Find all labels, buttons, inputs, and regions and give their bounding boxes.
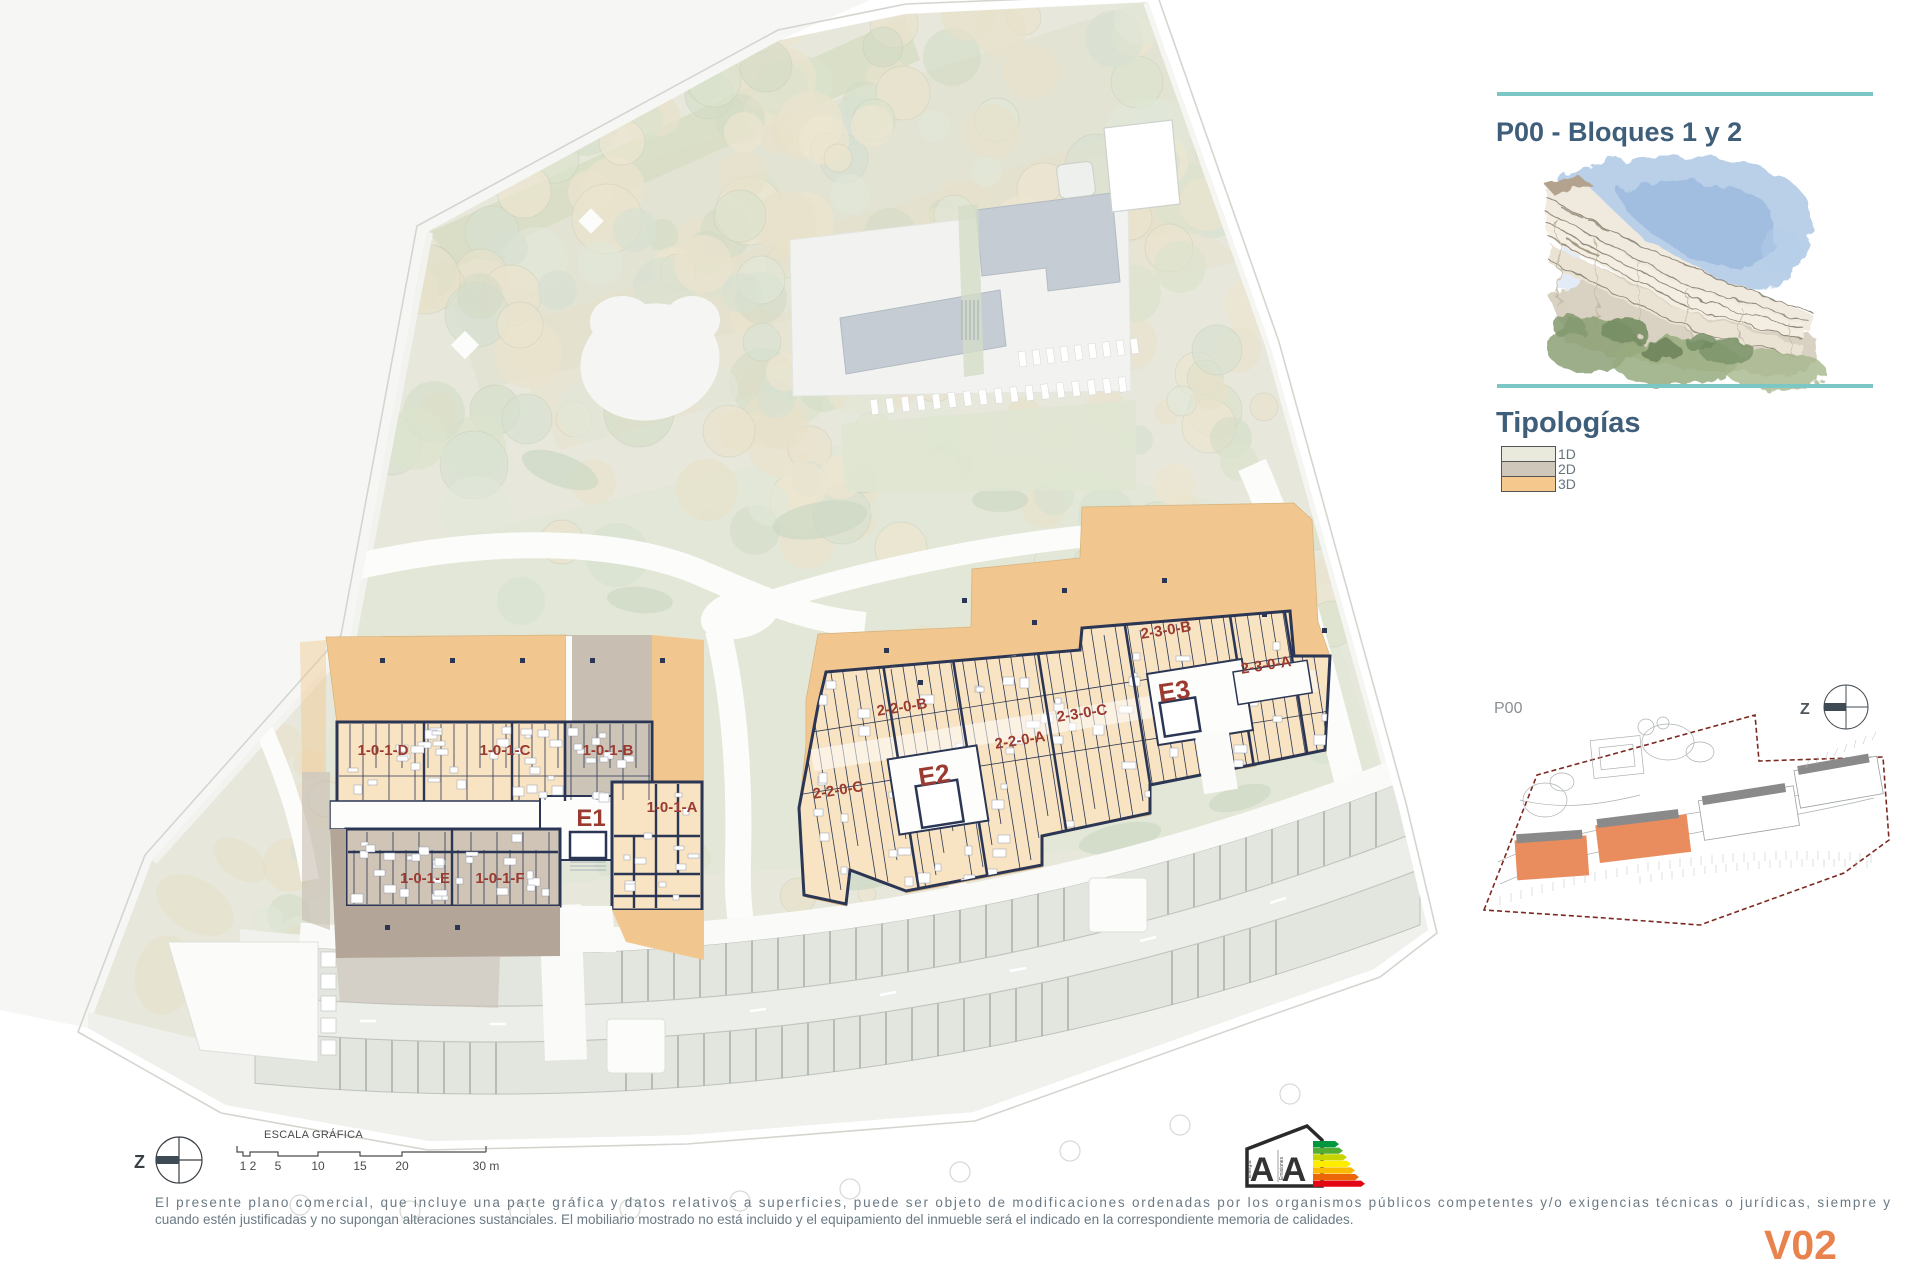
svg-text:1D: 1D <box>1558 446 1576 462</box>
svg-text:10: 10 <box>311 1159 325 1173</box>
svg-text:V02: V02 <box>1764 1222 1837 1268</box>
svg-text:ESCALA GRÁFICA: ESCALA GRÁFICA <box>264 1128 363 1141</box>
svg-text:Z: Z <box>134 1152 145 1172</box>
svg-text:15: 15 <box>353 1159 367 1173</box>
svg-text:A: A <box>1282 1151 1307 1189</box>
svg-text:1-0-1-B: 1-0-1-B <box>583 742 634 759</box>
svg-text:3D: 3D <box>1558 476 1576 492</box>
svg-text:20: 20 <box>395 1159 409 1173</box>
svg-text:P00: P00 <box>1494 700 1523 717</box>
svg-text:Emisiones: Emisiones <box>1279 1156 1285 1180</box>
svg-text:1-0-1-A: 1-0-1-A <box>647 799 698 816</box>
svg-text:P00 - Bloques 1 y 2: P00 - Bloques 1 y 2 <box>1496 117 1742 147</box>
svg-text:1-0-1-F: 1-0-1-F <box>475 870 524 887</box>
svg-text:El presente plano comercial, q: El presente plano comercial, que incluye… <box>155 1195 1890 1210</box>
svg-text:1-0-1-D: 1-0-1-D <box>358 742 409 759</box>
svg-text:1: 1 <box>240 1159 247 1173</box>
svg-text:Tipologías: Tipologías <box>1496 407 1640 439</box>
svg-text:Z: Z <box>1800 701 1810 718</box>
svg-text:E3: E3 <box>1156 674 1192 709</box>
svg-text:cuando estén justificadas y no: cuando estén justificadas y no supongan … <box>155 1212 1353 1227</box>
svg-text:30 m: 30 m <box>473 1159 500 1173</box>
svg-text:2: 2 <box>250 1159 257 1173</box>
svg-text:E1: E1 <box>576 805 605 832</box>
svg-text:5: 5 <box>275 1159 282 1173</box>
svg-text:1-0-1-C: 1-0-1-C <box>480 742 531 759</box>
svg-text:Energía: Energía <box>1247 1160 1253 1178</box>
svg-text:A: A <box>1250 1151 1275 1189</box>
svg-text:2D: 2D <box>1558 461 1576 477</box>
svg-text:1-0-1-E: 1-0-1-E <box>400 870 450 887</box>
svg-text:E2: E2 <box>916 758 952 793</box>
